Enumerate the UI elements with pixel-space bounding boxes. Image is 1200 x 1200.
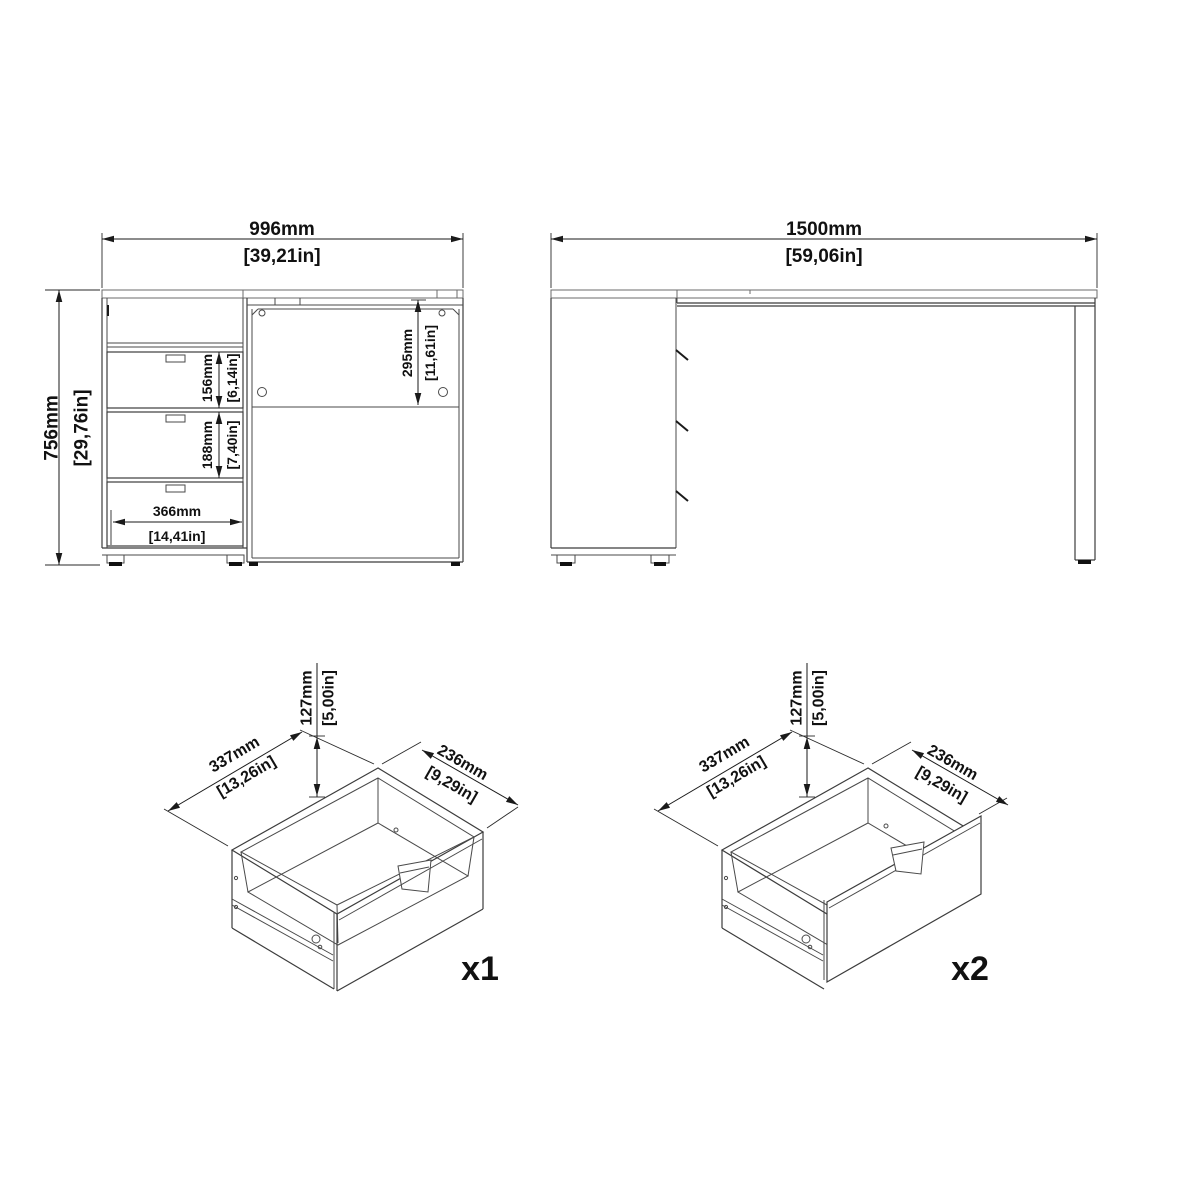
desk-front-view: 996mm [39,21in] 756mm [29,76in] — [42, 219, 463, 566]
drawer-x2-height-dimension: 127mm [5,00in] — [789, 663, 828, 797]
desk-side-view: 1500mm [59,06in] — [551, 219, 1097, 566]
furniture-dimension-drawing: 996mm [39,21in] 756mm [29,76in] — [0, 0, 1200, 1200]
front-width-mm-label: 996mm — [249, 219, 315, 240]
side-desk-leg — [1075, 298, 1095, 564]
front-door-dimension: 295mm [11,61in] — [399, 300, 438, 405]
door-in-label: [11,61in] — [422, 325, 438, 381]
drawer-isometric-x1: 127mm [5,00in] 337mm [13,26in] 236mm [9,… — [164, 663, 518, 991]
front-width-in-label: [39,21in] — [243, 246, 320, 267]
drawer-isometric-x2: 127mm [5,00in] 337mm [13,26in] 236mm [9,… — [654, 663, 1008, 989]
drawer-box-x1 — [232, 768, 483, 991]
drawer-width-in-label: [14,41in] — [149, 528, 206, 544]
drawer-x1-height-in-label: [5,00in] — [321, 670, 338, 726]
side-depth-mm-label: 1500mm — [786, 219, 862, 240]
side-desktop — [551, 290, 1097, 306]
front-height-in-label: [29,76in] — [72, 389, 93, 466]
side-handle-mark — [676, 421, 688, 431]
front-height-dimension: 756mm [29,76in] — [42, 290, 100, 565]
side-handle-mark — [676, 350, 688, 360]
drawer2-height-in-label: [7,40in] — [224, 420, 240, 469]
drawer-x1-height-dimension: 127mm [5,00in] — [299, 663, 338, 797]
front-drawer1-dimension: 156mm [6,14in] — [199, 352, 240, 408]
side-cabinet-panel — [551, 298, 688, 566]
drawer-x2-quantity-label: x2 — [951, 950, 989, 988]
door-mm-label: 295mm — [399, 329, 415, 377]
drawer-handle — [166, 415, 185, 422]
drawer-x2-height-mm-label: 127mm — [789, 670, 806, 725]
drawer-width-mm-label: 366mm — [153, 503, 201, 519]
drawer2-height-mm-label: 188mm — [199, 421, 215, 469]
drawer1-height-in-label: [6,14in] — [224, 353, 240, 402]
drawer-box-x2 — [722, 768, 981, 989]
side-depth-in-label: [59,06in] — [785, 246, 862, 267]
front-desktop — [102, 290, 463, 305]
drawer-x1-quantity-label: x1 — [461, 950, 499, 988]
drawer1-height-mm-label: 156mm — [199, 354, 215, 402]
side-handle-mark — [676, 491, 688, 501]
drawer-x2-height-in-label: [5,00in] — [811, 670, 828, 726]
rail-roller — [312, 935, 320, 943]
rail-roller — [802, 935, 810, 943]
front-drawer2-dimension: 188mm [7,40in] — [199, 412, 240, 478]
drawer-x1-height-mm-label: 127mm — [299, 670, 316, 725]
drawer-handle — [166, 355, 185, 362]
front-height-mm-label: 756mm — [42, 395, 63, 461]
side-depth-dimension: 1500mm [59,06in] — [551, 219, 1097, 288]
front-width-dimension: 996mm [39,21in] — [102, 219, 463, 288]
drawer-handle — [166, 485, 185, 492]
